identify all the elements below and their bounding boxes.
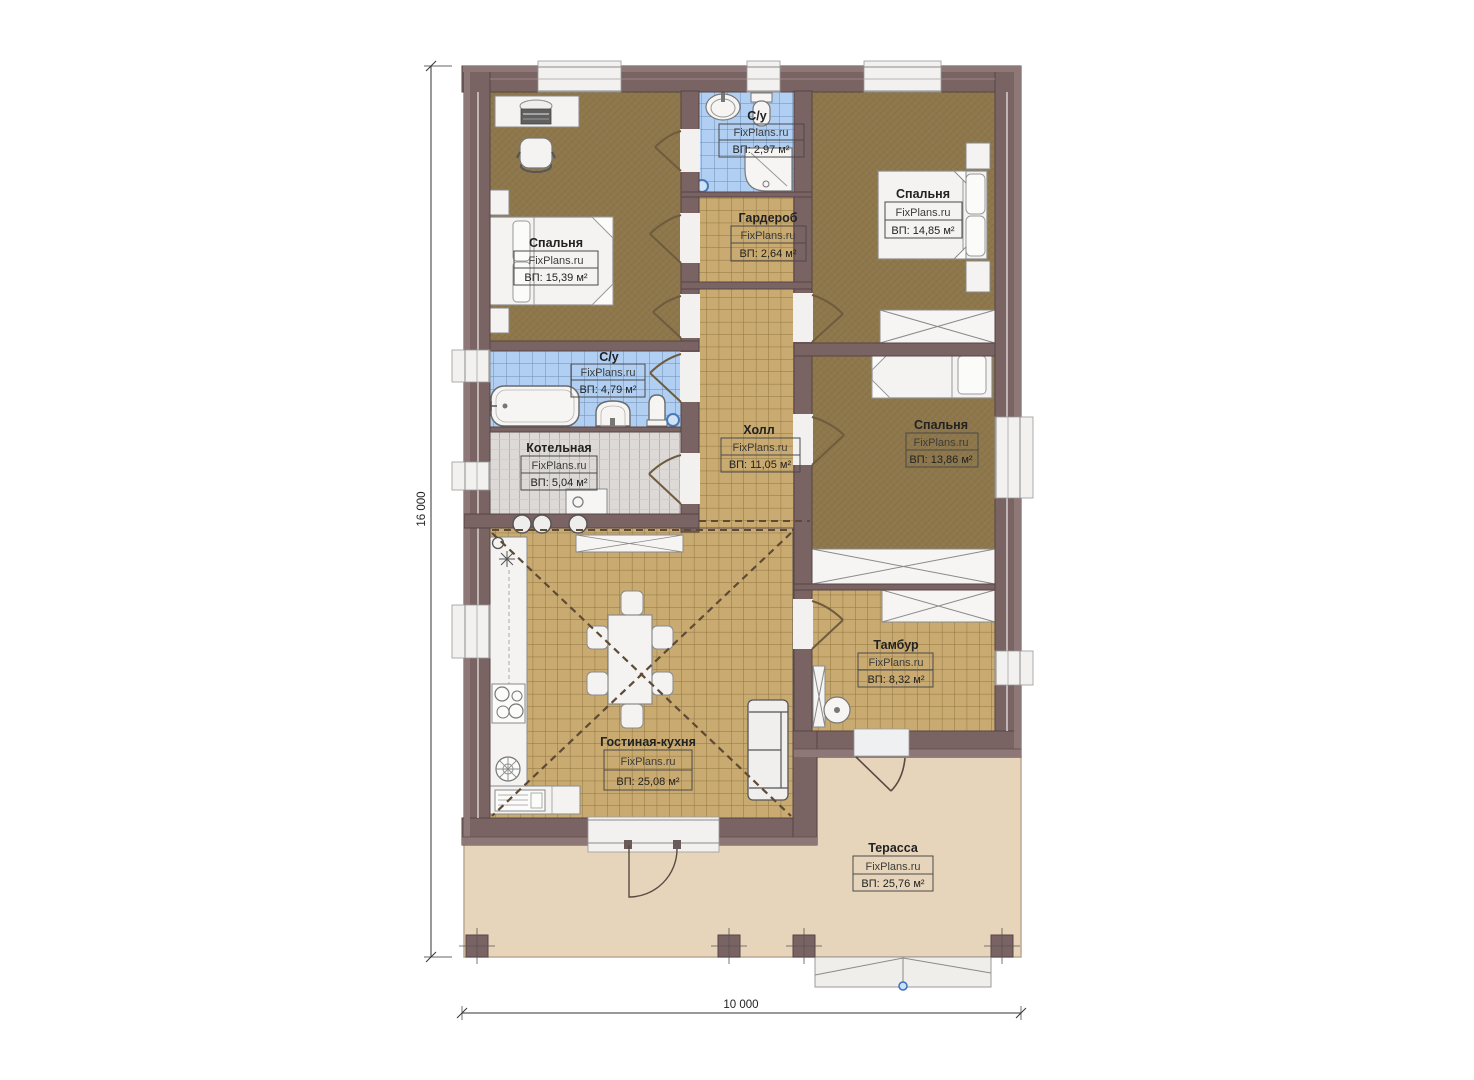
- svg-text:FixPlans.ru: FixPlans.ru: [733, 127, 788, 139]
- svg-text:ВП: 4,79 м²: ВП: 4,79 м²: [579, 384, 636, 396]
- svg-text:ВП: 14,85 м²: ВП: 14,85 м²: [891, 225, 955, 237]
- svg-text:ВП: 13,86 м²: ВП: 13,86 м²: [909, 454, 973, 466]
- svg-text:FixPlans.ru: FixPlans.ru: [895, 207, 950, 219]
- svg-text:ВП: 2,97 м²: ВП: 2,97 м²: [732, 144, 789, 156]
- svg-text:FixPlans.ru: FixPlans.ru: [620, 756, 675, 768]
- svg-text:ВП: 15,39 м²: ВП: 15,39 м²: [524, 272, 588, 284]
- svg-text:Котельная: Котельная: [526, 441, 591, 455]
- svg-text:ВП: 2,64 м²: ВП: 2,64 м²: [739, 248, 796, 260]
- svg-text:FixPlans.ru: FixPlans.ru: [580, 367, 635, 379]
- svg-text:С/у: С/у: [747, 109, 767, 123]
- svg-text:16 000: 16 000: [416, 491, 428, 526]
- svg-text:FixPlans.ru: FixPlans.ru: [868, 657, 923, 669]
- svg-text:ВП: 25,76 м²: ВП: 25,76 м²: [861, 878, 925, 890]
- svg-text:ВП: 11,05 м²: ВП: 11,05 м²: [729, 459, 792, 471]
- svg-text:FixPlans.ru: FixPlans.ru: [732, 442, 787, 454]
- svg-text:Гостиная-кухня: Гостиная-кухня: [600, 735, 696, 749]
- svg-text:ВП: 5,04 м²: ВП: 5,04 м²: [530, 477, 587, 489]
- svg-text:Гардероб: Гардероб: [738, 211, 797, 225]
- svg-text:Тамбур: Тамбур: [873, 638, 919, 652]
- svg-text:С/у: С/у: [599, 350, 619, 364]
- svg-text:FixPlans.ru: FixPlans.ru: [913, 437, 968, 449]
- svg-text:FixPlans.ru: FixPlans.ru: [865, 861, 920, 873]
- svg-text:Спальня: Спальня: [529, 236, 583, 250]
- svg-text:Спальня: Спальня: [914, 418, 968, 432]
- svg-text:ВП: 25,08 м²: ВП: 25,08 м²: [616, 776, 680, 788]
- svg-text:FixPlans.ru: FixPlans.ru: [740, 230, 795, 242]
- svg-text:Спальня: Спальня: [896, 187, 950, 201]
- svg-text:Холл: Холл: [743, 423, 774, 437]
- svg-text:10 000: 10 000: [723, 999, 758, 1011]
- svg-text:Терасса: Терасса: [868, 841, 919, 855]
- svg-text:FixPlans.ru: FixPlans.ru: [531, 460, 586, 472]
- svg-text:FixPlans.ru: FixPlans.ru: [528, 255, 583, 267]
- svg-text:ВП: 8,32 м²: ВП: 8,32 м²: [867, 674, 924, 686]
